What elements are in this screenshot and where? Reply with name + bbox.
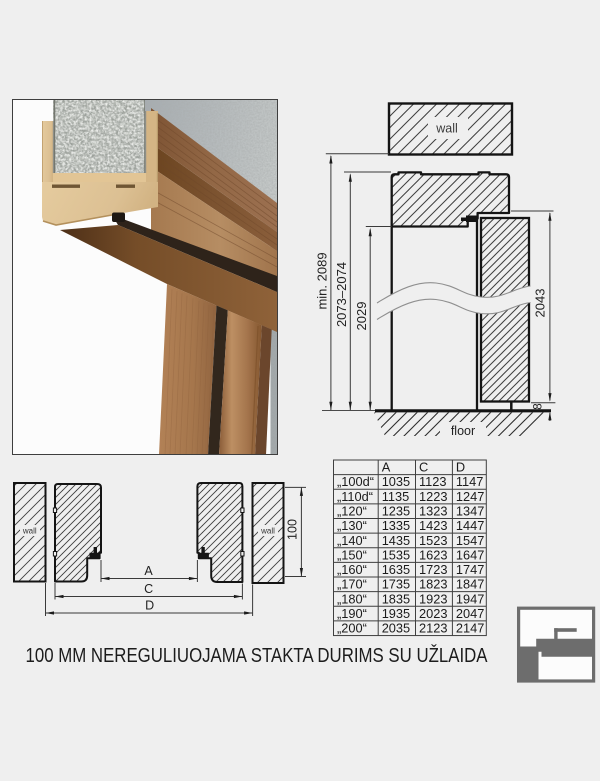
svg-text:1147: 1147 [456,474,484,489]
svg-text:C: C [144,582,153,596]
svg-text:1735: 1735 [382,577,410,592]
svg-text:wall: wall [260,527,275,536]
svg-text:1935: 1935 [382,606,410,621]
svg-text:2043: 2043 [533,289,548,318]
svg-text:A: A [382,460,391,475]
svg-text:2147: 2147 [456,621,484,636]
svg-text:„170“: „170“ [337,577,367,592]
svg-text:wall: wall [435,122,458,136]
svg-text:„150“: „150“ [337,547,367,562]
svg-text:8: 8 [533,403,545,409]
svg-text:2073–2074: 2073–2074 [334,262,349,327]
svg-text:„180“: „180“ [337,591,367,606]
svg-text:1323: 1323 [419,503,447,518]
svg-text:1623: 1623 [419,547,447,562]
svg-text:2035: 2035 [382,621,410,636]
svg-text:100 MM NEREGULIUOJAMA STAKTA D: 100 MM NEREGULIUOJAMA STAKTA DURIMS SU U… [26,644,488,667]
svg-text:1747: 1747 [456,562,484,577]
svg-text:1923: 1923 [419,591,447,606]
svg-text:1123: 1123 [419,474,447,489]
svg-text:„100d“: „100d“ [337,474,374,489]
svg-text:„110d“: „110d“ [337,489,373,504]
svg-text:„160“: „160“ [337,562,367,577]
svg-text:D: D [456,460,465,475]
svg-text:1335: 1335 [382,518,410,533]
svg-text:1435: 1435 [382,533,410,548]
svg-text:wall: wall [22,527,37,536]
svg-text:1447: 1447 [456,518,484,533]
svg-text:„140“: „140“ [337,533,367,548]
svg-text:min. 2089: min. 2089 [315,252,330,309]
svg-text:„190“: „190“ [337,606,367,621]
svg-text:1423: 1423 [419,518,447,533]
svg-text:C: C [419,460,428,475]
svg-text:1235: 1235 [382,503,410,518]
svg-text:1635: 1635 [382,562,410,577]
svg-text:2047: 2047 [456,606,484,621]
svg-text:1347: 1347 [456,503,484,518]
svg-text:„120“: „120“ [337,503,367,518]
svg-text:2029: 2029 [354,302,369,331]
svg-text:1947: 1947 [456,591,484,606]
svg-text:„130“: „130“ [337,518,367,533]
svg-text:1535: 1535 [382,547,410,562]
svg-text:D: D [145,599,154,613]
svg-text:1223: 1223 [419,489,447,504]
svg-text:2123: 2123 [419,621,447,636]
svg-text:100: 100 [286,519,300,540]
svg-text:A: A [144,564,153,578]
svg-text:1135: 1135 [382,489,410,504]
svg-text:1035: 1035 [382,474,410,489]
svg-text:1847: 1847 [456,577,484,592]
svg-text:„200“: „200“ [337,621,367,636]
svg-text:1823: 1823 [419,577,447,592]
svg-text:2023: 2023 [419,606,447,621]
svg-text:1723: 1723 [419,562,447,577]
svg-text:1835: 1835 [382,591,410,606]
svg-text:1247: 1247 [456,489,484,504]
svg-text:floor: floor [451,424,475,438]
svg-text:1647: 1647 [456,547,484,562]
svg-text:1523: 1523 [419,533,447,548]
svg-text:1547: 1547 [456,533,484,548]
